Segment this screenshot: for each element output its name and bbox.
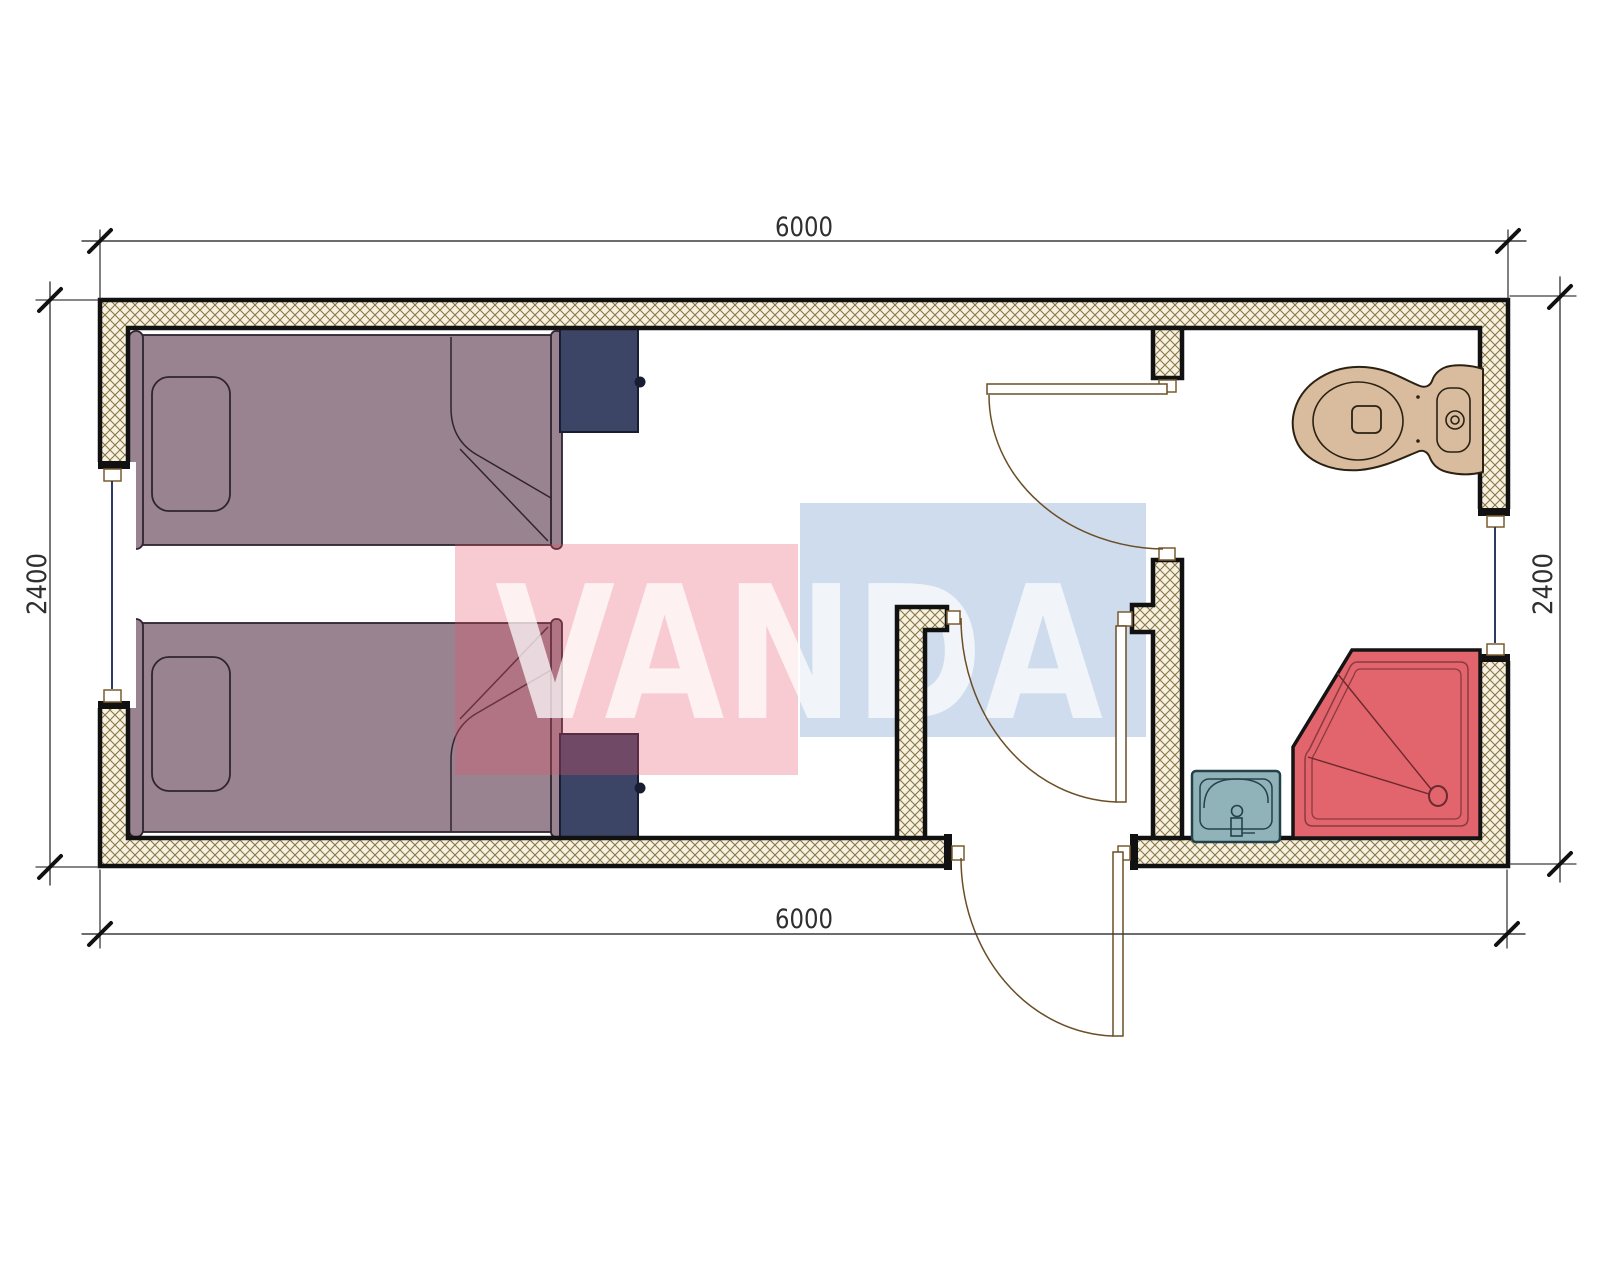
door-jamb (952, 846, 964, 860)
sink-counter (1192, 771, 1280, 842)
nightstand-1-body (560, 328, 638, 432)
door-jamb (947, 611, 960, 624)
window-jamb (1487, 516, 1504, 527)
window-jamb (104, 469, 121, 481)
floor-plan-drawing: VANDA (0, 0, 1600, 1280)
toilet-hinge-dot (1416, 395, 1420, 399)
fixtures-layer (1192, 365, 1483, 842)
sink (1192, 771, 1280, 842)
watermark-text: VANDA (495, 546, 1103, 762)
nightstand-1 (560, 328, 646, 432)
door-leaf (1116, 626, 1126, 802)
dimension-label-left: 2400 (22, 553, 53, 615)
wall-end-cap (98, 461, 130, 469)
bed-2-pillow (152, 657, 230, 791)
door-swing-arc (961, 858, 1113, 1036)
window-jamb (104, 690, 121, 702)
bed-1-pillow (152, 377, 230, 511)
toilet-hinge-dot (1416, 439, 1420, 443)
door-jamb (1159, 548, 1175, 560)
wall-end-cap (1478, 508, 1510, 516)
dimension-label-right: 2400 (1528, 553, 1559, 615)
door-entrance (961, 852, 1123, 1036)
toilet-body (1293, 365, 1483, 474)
nightstand-2-knob (635, 783, 646, 794)
bed-1 (129, 331, 562, 549)
left-window-opening (92, 462, 136, 708)
wall-end-cap (944, 834, 952, 870)
door-leaf (987, 384, 1167, 394)
floor-plan-canvas: VANDA (0, 0, 1600, 1280)
entrance-opening (951, 832, 1131, 872)
wall-end-cap (1130, 834, 1138, 870)
dimension-label-top: 6000 (775, 212, 833, 243)
shower-tray (1293, 650, 1480, 838)
window-jamb (1487, 644, 1504, 655)
dimension-label-bottom: 6000 (775, 904, 833, 935)
door-leaf (1113, 852, 1123, 1036)
partition-stub-top (1153, 328, 1182, 378)
door-jamb (1118, 612, 1132, 626)
toilet (1293, 365, 1483, 474)
nightstand-1-knob (635, 377, 646, 388)
shower-tray-outer (1293, 650, 1480, 838)
